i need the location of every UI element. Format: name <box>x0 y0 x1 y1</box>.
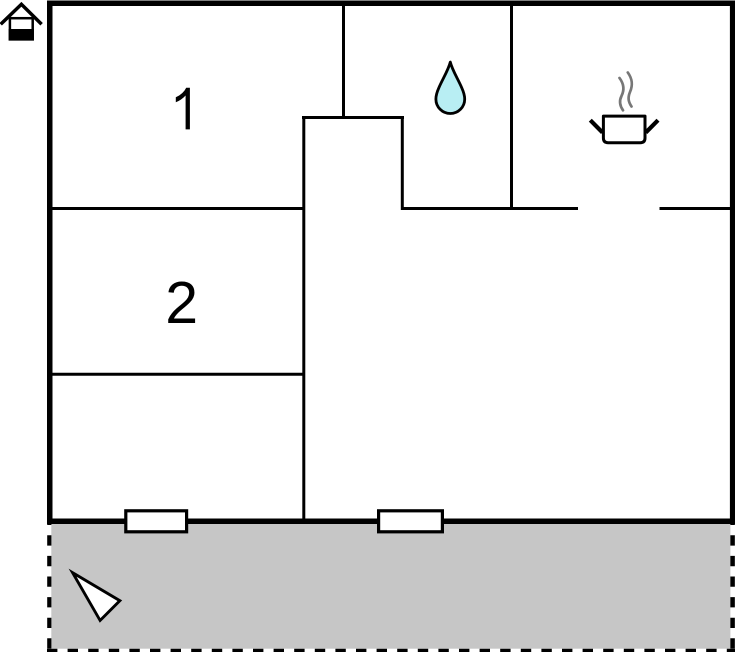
svg-text:2: 2 <box>165 270 198 336</box>
